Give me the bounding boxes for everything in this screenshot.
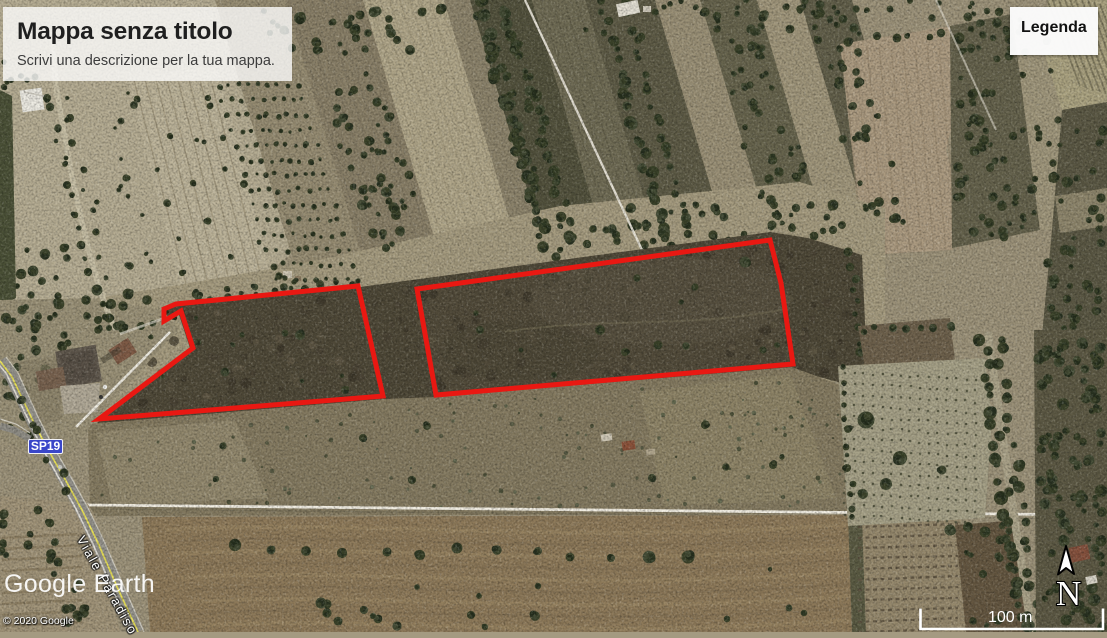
- svg-text:N: N: [1056, 574, 1081, 612]
